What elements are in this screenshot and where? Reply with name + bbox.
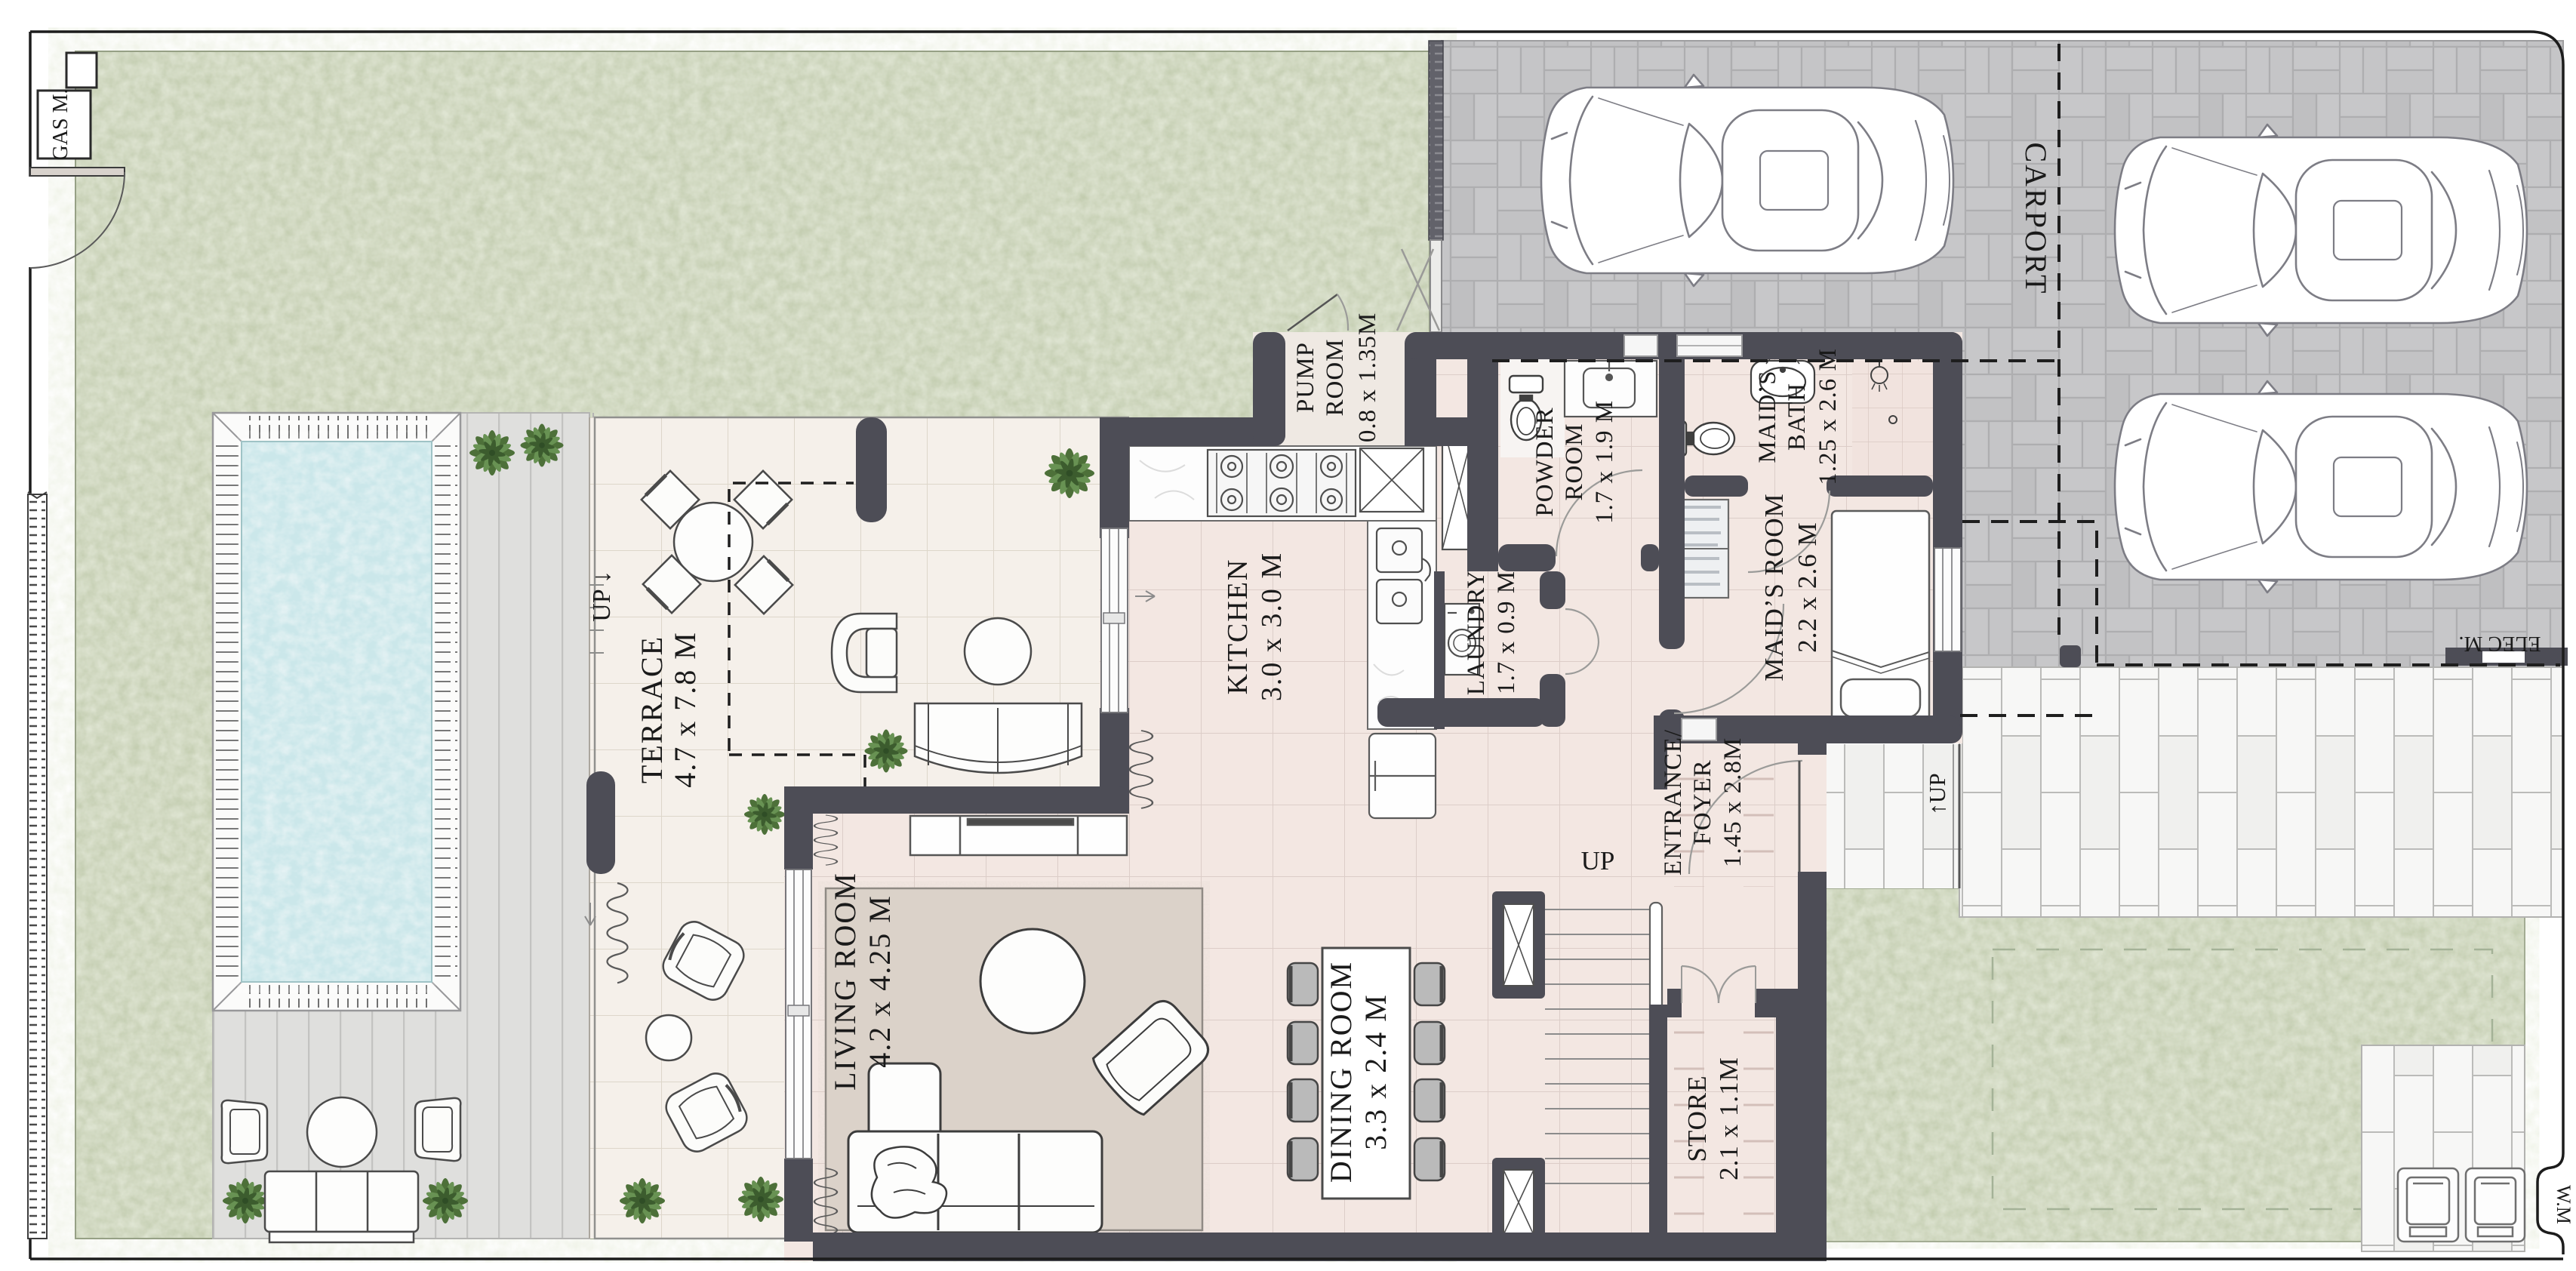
svg-text:POWDER: POWDER (1531, 407, 1559, 516)
svg-text:TERRACE: TERRACE (635, 635, 669, 783)
svg-text:PUMP: PUMP (1292, 342, 1319, 413)
svg-text:FOYER: FOYER (1689, 759, 1716, 845)
svg-text:ENTRANCE/: ENTRANCE/ (1660, 729, 1687, 876)
svg-text:ROOM: ROOM (1322, 338, 1349, 416)
svg-text:MAID’S: MAID’S (1754, 370, 1781, 463)
svg-text:UP ↓: UP ↓ (588, 571, 616, 622)
svg-text:3.0 x 3.0 M: 3.0 x 3.0 M (1256, 552, 1288, 701)
svg-text:UP: UP (1581, 846, 1615, 876)
svg-text:LIVING ROOM: LIVING ROOM (828, 872, 862, 1091)
svg-text:GAS M.: GAS M. (49, 89, 72, 161)
svg-text:↑UP: ↑UP (1924, 773, 1950, 814)
svg-text:1.45 x 2.8M: 1.45 x 2.8M (1719, 737, 1747, 867)
svg-text:3.3 x 2.4 M: 3.3 x 2.4 M (1359, 993, 1393, 1150)
svg-text:W.M: W.M (2553, 1185, 2574, 1224)
svg-text:KITCHEN: KITCHEN (1222, 559, 1254, 695)
svg-text:ELEC M.: ELEC M. (2459, 632, 2541, 655)
svg-text:2.1 x 1.1M: 2.1 x 1.1M (1714, 1057, 1743, 1180)
svg-text:1.7 x 1.9 M: 1.7 x 1.9 M (1591, 400, 1618, 524)
svg-text:0.8 x 1.35M: 0.8 x 1.35M (1354, 312, 1381, 442)
svg-text:1.7 x 0.9 M: 1.7 x 0.9 M (1493, 571, 1520, 694)
svg-text:4.2 x 4.25 M: 4.2 x 4.25 M (863, 894, 897, 1068)
svg-text:BATH: BATH (1784, 383, 1811, 451)
svg-text:CARPORT: CARPORT (2019, 142, 2053, 295)
svg-text:STORE: STORE (1682, 1075, 1712, 1162)
svg-text:MAID’S ROOM: MAID’S ROOM (1759, 493, 1789, 681)
svg-text:ROOM: ROOM (1561, 423, 1588, 500)
svg-text:2.2 x 2.6 M: 2.2 x 2.6 M (1793, 522, 1822, 652)
svg-text:4.7 x 7.8 M: 4.7 x 7.8 M (668, 631, 702, 788)
svg-text:LAUNDRY: LAUNDRY (1463, 570, 1490, 696)
svg-text:1.25 x 2.6 M: 1.25 x 2.6 M (1814, 348, 1842, 485)
svg-text:DINING ROOM: DINING ROOM (1324, 961, 1358, 1183)
